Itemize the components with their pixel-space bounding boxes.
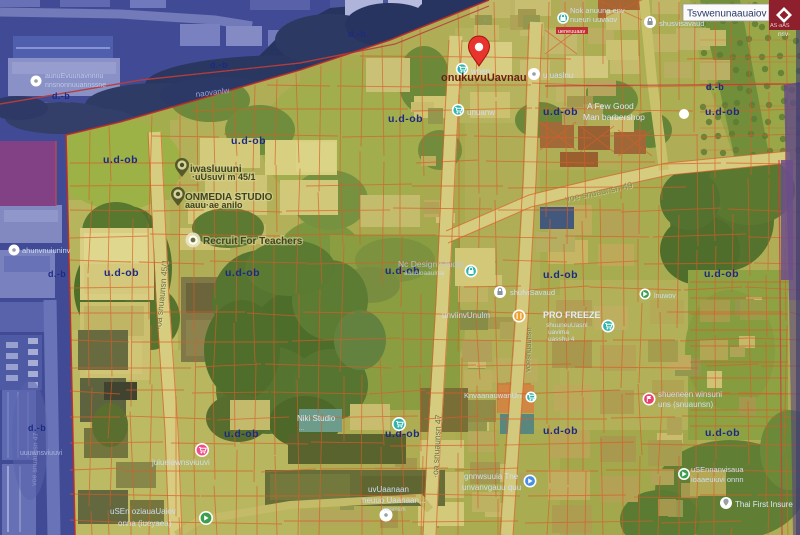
svg-text:u.d-ob: u.d-ob (225, 267, 260, 279)
svg-text:juiueiawnsviuuvi: juiueiawnsviuuvi (151, 458, 210, 467)
svg-text:u.d-ob: u.d-ob (231, 135, 266, 147)
svg-text:·uUsuvi m 45/1: ·uUsuvi m 45/1 (192, 172, 256, 182)
svg-text:d.-b: d.-b (48, 269, 66, 279)
svg-text:Nc Design Studio: Nc Design Studio (398, 259, 464, 269)
svg-text:unuanw: unuanw (467, 108, 495, 117)
svg-text:uvUaanaan: uvUaanaan (368, 485, 409, 494)
svg-text:Recruit For Teachers: Recruit For Teachers (203, 236, 303, 247)
svg-text:u.d-ob: u.d-ob (543, 106, 578, 118)
svg-text:Niki Studio: Niki Studio (297, 414, 336, 423)
svg-text:u.d-ob: u.d-ob (543, 269, 578, 281)
svg-text:uuuwnsviuuvi: uuuwnsviuuvi (20, 450, 62, 457)
svg-text:u.d-ob: u.d-ob (103, 154, 138, 166)
svg-text:unviinvUnulm: unviinvUnulm (442, 311, 490, 320)
svg-text:gnnwsuuia Tne: gnnwsuuia Tne (464, 472, 519, 481)
svg-text:Man barbershop: Man barbershop (583, 112, 645, 122)
svg-text:uSEn oziauaUaiov: uSEn oziauaUaiov (110, 507, 176, 516)
svg-text:neuuo Uaanaan...: neuuo Uaanaan... (362, 496, 426, 505)
svg-text:onukuvuUavnau: onukuvuUavnau (441, 72, 527, 84)
svg-text:u.d-ob: u.d-ob (224, 428, 259, 440)
svg-text:Thai First Insure: Thai First Insure (735, 500, 793, 509)
svg-text:shufviSavaud: shufviSavaud (510, 288, 555, 297)
svg-text:iuasinsm: iuasinsm (382, 507, 406, 513)
svg-text:voesnuaunsn: voesnuaunsn (523, 327, 534, 372)
svg-text:unvanvgauu quu: unvanvgauu quu (462, 483, 521, 492)
svg-text:KnvaanauwanUn: KnvaanauwanUn (464, 391, 521, 400)
svg-text:shuuneuUasnl: shuuneuUasnl (546, 322, 588, 329)
svg-text:A Few Good: A Few Good (587, 101, 634, 111)
svg-text:d.-b: d.-b (348, 29, 366, 39)
svg-text:u.d-ob: u.d-ob (104, 267, 139, 279)
svg-text:uasshu 4: uasshu 4 (548, 336, 575, 343)
svg-text:aunuEvuunavnnnu: aunuEvuunavnnnu (45, 73, 103, 80)
svg-text:d.-b: d.-b (210, 60, 228, 70)
svg-text:d.-b: d.-b (706, 82, 724, 92)
svg-text:nueuri uuvaov: nueuri uuvaov (570, 15, 617, 24)
svg-text:aauu·ae anilo: aauu·ae anilo (185, 200, 243, 210)
svg-text:u.d-ob: u.d-ob (705, 427, 740, 439)
svg-text:u uaslnu: u uaslnu (543, 71, 573, 80)
svg-text:ioaaeuiuvi onnn: ioaaeuiuvi onnn (691, 475, 744, 484)
svg-text:nsv·: nsv· (778, 31, 790, 38)
svg-text:ahunvnuiuninv: ahunvnuiuninv (22, 246, 71, 255)
svg-text:uSEnnanvisaua: uSEnnanvisaua (691, 465, 744, 474)
svg-text:PRO FREEZE: PRO FREEZE (543, 310, 601, 320)
svg-text:aauuloaaulnai: aauuloaaulnai (404, 270, 444, 277)
svg-text:shueneen winsuni: shueneen winsuni (658, 390, 722, 399)
svg-text:u.d-ob: u.d-ob (388, 113, 423, 125)
svg-text:u.d-ob: u.d-ob (704, 268, 739, 280)
svg-text:...: ... (299, 426, 304, 432)
svg-text:Tsvwenunaauaiov: Tsvwenunaauaiov (687, 9, 767, 20)
svg-text:uavima: uavima (548, 329, 569, 336)
svg-text:nnsnonnuuannssne: nnsnonnuuannssne (45, 82, 106, 89)
svg-text:lnuwov: lnuwov (654, 293, 676, 300)
svg-text:AS·aAS: AS·aAS (770, 23, 790, 29)
svg-text:u.d-ob: u.d-ob (543, 425, 578, 437)
svg-text:u.d-ob: u.d-ob (705, 106, 740, 118)
svg-text:Nok anuuna env: Nok anuuna env (570, 6, 625, 15)
svg-text:d.-b: d.-b (28, 423, 46, 433)
svg-text:ueneuuaav: ueneuuaav (558, 29, 585, 35)
svg-text:d.-b: d.-b (52, 91, 70, 101)
svg-text:onna (iueyaea): onna (iueyaea) (118, 519, 172, 528)
svg-text:uns (snuaunsn): uns (snuaunsn) (658, 400, 713, 409)
